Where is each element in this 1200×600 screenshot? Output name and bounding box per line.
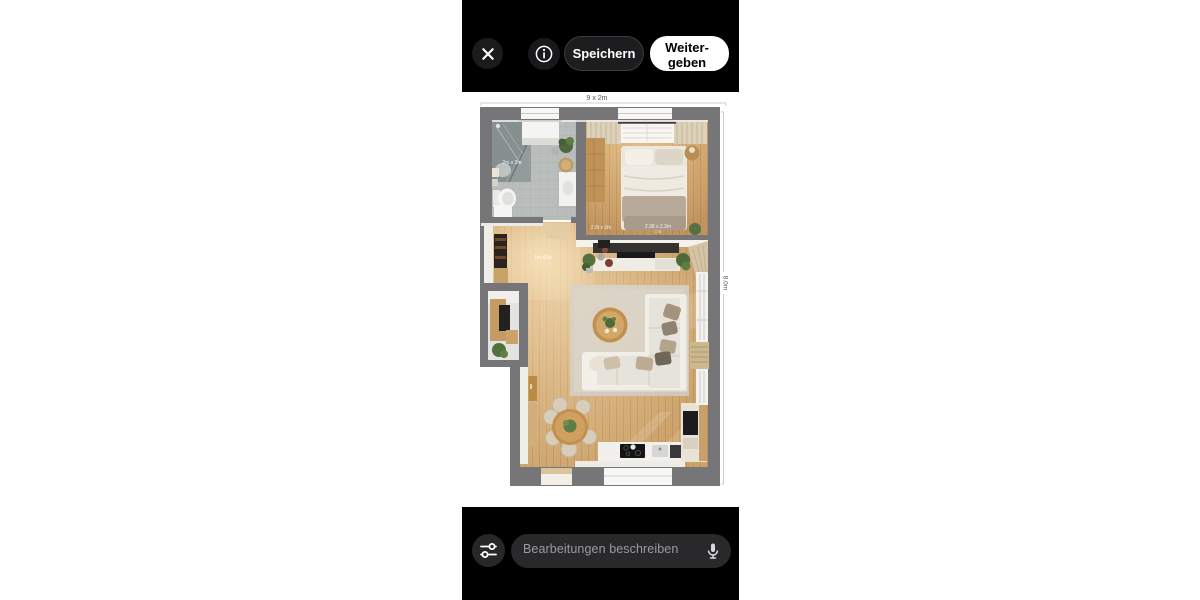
svg-text:2.9t x 2m: 2.9t x 2m [591, 225, 612, 231]
svg-text:9 x 2m: 9 x 2m [586, 95, 607, 102]
svg-text:8.0m: 8.0m [722, 276, 729, 290]
svg-text:17B: 17B [655, 230, 662, 234]
svg-text:1m x2m: 1m x2m [534, 255, 552, 261]
svg-text:2m x 2m: 2m x 2m [502, 160, 521, 166]
